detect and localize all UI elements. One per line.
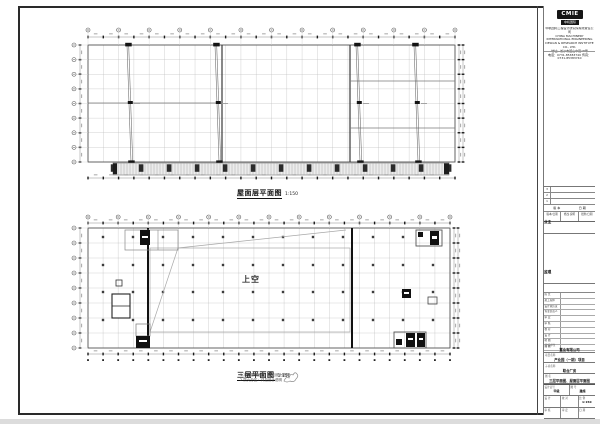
revision-table: 321版 本日 期版本/日期修改·说明批准/日期 bbox=[544, 186, 595, 222]
company-logo-subtitle: 中机国际 bbox=[561, 20, 579, 25]
company-info-lines: 中机国际工程设计研究院有限责任公司CHINA MACHINERY INTERNA… bbox=[545, 27, 594, 61]
structural-columns bbox=[102, 236, 434, 321]
owner-signature-line bbox=[544, 232, 595, 234]
left-side-rooms bbox=[112, 280, 130, 318]
revision-header: 版 本日 期 bbox=[544, 205, 595, 212]
column-grid-lines bbox=[88, 228, 450, 348]
page-edge-shadow bbox=[0, 419, 600, 424]
project-row: 项目名称产业园（一期）项目 bbox=[544, 353, 595, 364]
void-label: 上空 bbox=[242, 274, 260, 284]
third-floor-plan-drawing: 上空 bbox=[70, 212, 470, 364]
drawing-sheet: 屋面层平面图1:150 上空 三层平面图1:150 1.本层建筑面积：详见设计说… bbox=[0, 0, 600, 426]
project-info-rows: 建设单位置业有限公司项目名称产业园（一期）项目子项名称联合厂房图 名三层平面图、… bbox=[544, 342, 595, 384]
stair-cores bbox=[125, 230, 442, 348]
roof-louver-hatch-strip bbox=[111, 163, 452, 175]
owner-label: 业主 bbox=[544, 220, 595, 225]
owner-block: 业主 bbox=[544, 220, 595, 234]
supervisor-signature-line bbox=[544, 282, 595, 284]
titleblock-divider-outer bbox=[537, 6, 538, 415]
roof-plan-drawing bbox=[70, 24, 470, 180]
supervisor-label: 监理 bbox=[544, 270, 595, 275]
revision-cloud-mark bbox=[282, 370, 300, 384]
project-row: 子项名称联合厂房 bbox=[544, 363, 595, 374]
column-grid-lines bbox=[88, 45, 455, 162]
sheet-grid-row: 审 核审 定日 期 bbox=[544, 408, 595, 419]
roof-grid-bubbles bbox=[72, 28, 457, 164]
title-block: CMIE 中机国际 中机国际工程设计研究院有限责任公司CHINA MACHINE… bbox=[544, 6, 595, 415]
sheet-number-grid: 设计证号甲级图 号建施设 计校 对比 例1:150审 核审 定日 期 bbox=[544, 384, 595, 419]
supervisor-block: 监理 bbox=[544, 270, 595, 284]
sheet-grid-row: 设计证号甲级图 号建施 bbox=[544, 385, 595, 396]
roof-plan-title-text: 屋面层平面图 bbox=[237, 189, 282, 199]
company-logo: CMIE bbox=[557, 10, 583, 19]
project-row: 图 名三层平面图、屋面层平面图 bbox=[544, 374, 595, 385]
company-info-divider bbox=[544, 51, 595, 52]
project-row: 建设单位置业有限公司 bbox=[544, 342, 595, 353]
roof-plan-scale: 1:150 bbox=[285, 192, 298, 197]
third-grid-bubbles bbox=[72, 215, 452, 350]
company-info-line: 电话：0731-85383740 传真：0731-85383740 bbox=[545, 54, 594, 62]
roof-plan-title: 屋面层平面图1:150 bbox=[237, 180, 298, 199]
roof-dimension-lines bbox=[79, 33, 466, 179]
sheet-grid-row: 设 计校 对比 例1:150 bbox=[544, 396, 595, 407]
